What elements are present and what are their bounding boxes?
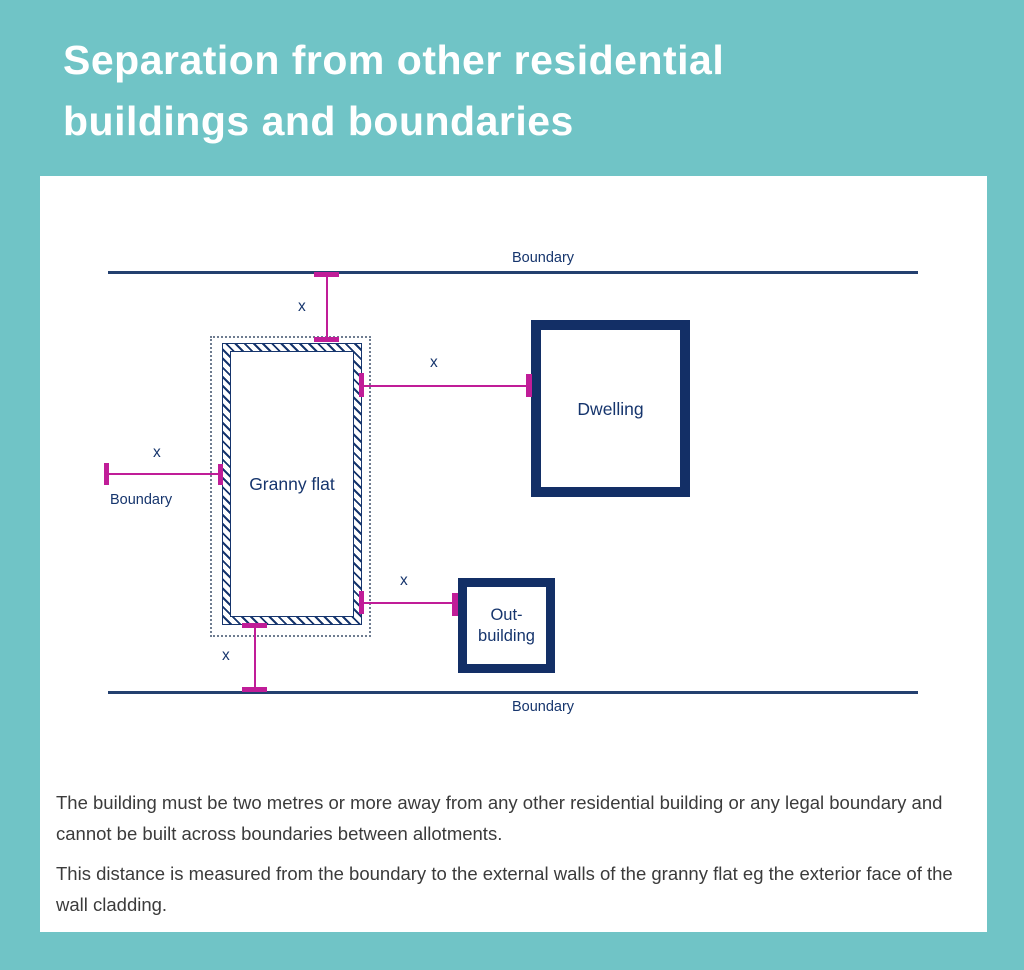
dimension-outbuilding-label: x — [400, 572, 408, 590]
outbuilding: Out- building — [458, 578, 555, 673]
dwelling: Dwelling — [531, 320, 690, 497]
dimension-left-label: x — [153, 444, 161, 462]
page: Separation from other residential buildi… — [0, 0, 1024, 970]
dimension-top-line — [326, 275, 328, 339]
dimension-left-line — [108, 473, 220, 475]
dimension-left-cap-building — [218, 464, 223, 485]
paragraph-2: This distance is measured from the bound… — [56, 858, 981, 920]
dimension-outbuilding-line — [364, 602, 456, 604]
dimension-bottom-cap-boundary — [242, 687, 267, 692]
body-text: The building must be two metres or more … — [56, 787, 981, 929]
bottom-boundary-line — [108, 691, 918, 694]
outbuilding-label-line2: building — [478, 626, 535, 647]
paragraph-1: The building must be two metres or more … — [56, 787, 981, 849]
left-boundary-marker — [104, 463, 109, 485]
dimension-top-cap-building — [314, 337, 339, 342]
dimension-dwelling-label: x — [430, 354, 438, 372]
granny-flat-interior: Granny flat — [230, 351, 354, 617]
granny-flat-label: Granny flat — [249, 473, 335, 495]
dimension-outbuilding-cap-grannyflat — [359, 591, 364, 614]
top-boundary-label: Boundary — [468, 250, 618, 266]
top-boundary-line — [108, 271, 918, 274]
left-boundary-label: Boundary — [110, 492, 172, 508]
dimension-top-label: x — [298, 298, 306, 316]
dimension-dwelling-cap-dwelling — [526, 374, 532, 397]
dimension-outbuilding-cap-outbuilding — [452, 593, 458, 616]
dwelling-label: Dwelling — [577, 398, 643, 420]
bottom-boundary-label: Boundary — [468, 699, 618, 715]
page-title: Separation from other residential buildi… — [63, 30, 724, 152]
dimension-bottom-line — [254, 627, 256, 689]
dimension-top-cap-boundary — [314, 272, 339, 277]
page-title-line1: Separation from other residential — [63, 30, 724, 91]
dimension-bottom-cap-building — [242, 623, 267, 628]
outbuilding-label-line1: Out- — [490, 605, 522, 626]
dimension-dwelling-line — [364, 385, 528, 387]
dimension-bottom-label: x — [222, 647, 230, 665]
diagram-card: Boundary Boundary Granny flat Dwelling O… — [40, 176, 987, 932]
page-title-line2: buildings and boundaries — [63, 91, 724, 152]
granny-flat: Granny flat — [222, 343, 362, 625]
dimension-dwelling-cap-grannyflat — [359, 373, 364, 397]
